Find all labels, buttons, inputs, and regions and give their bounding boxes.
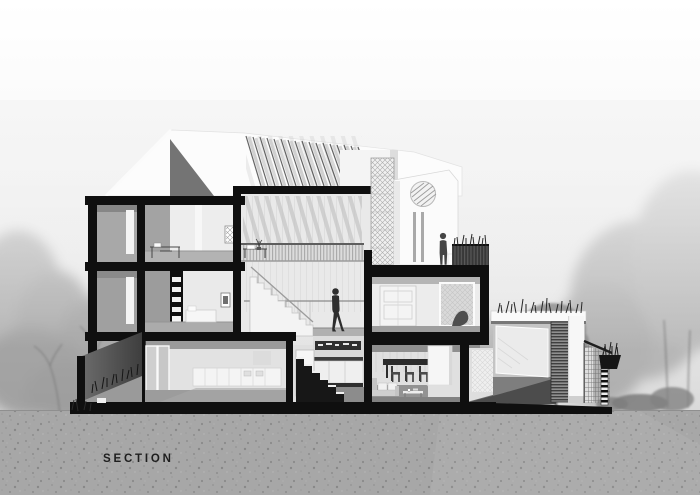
stair-tower <box>394 170 458 265</box>
drawing-title: SECTION <box>103 453 174 465</box>
section-drawing: SECTION <box>0 0 700 495</box>
hatched-post <box>601 369 608 405</box>
bedroom-upper <box>145 205 239 262</box>
gate-pillar <box>568 316 584 403</box>
bedroom-window <box>440 283 474 327</box>
mid-landing <box>313 328 364 341</box>
bedroom-middle <box>145 271 233 332</box>
partition-wall <box>428 346 452 385</box>
circular-window <box>411 182 437 207</box>
trellis-screen <box>371 158 394 265</box>
wardrobe-room <box>372 277 480 332</box>
wainscot-cabinets <box>193 368 281 386</box>
bedroom-lower <box>142 341 286 402</box>
glass-door <box>146 346 169 396</box>
section-drawing-canvas <box>0 0 700 495</box>
slatted-gate <box>551 322 569 402</box>
